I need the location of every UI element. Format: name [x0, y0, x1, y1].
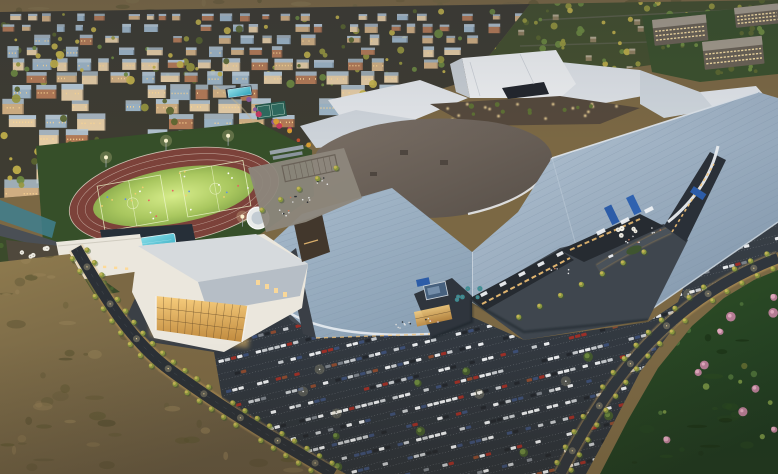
atmosphere-overlay — [0, 0, 778, 474]
aerial-rendering — [0, 0, 778, 474]
scene-canvas — [0, 0, 778, 474]
